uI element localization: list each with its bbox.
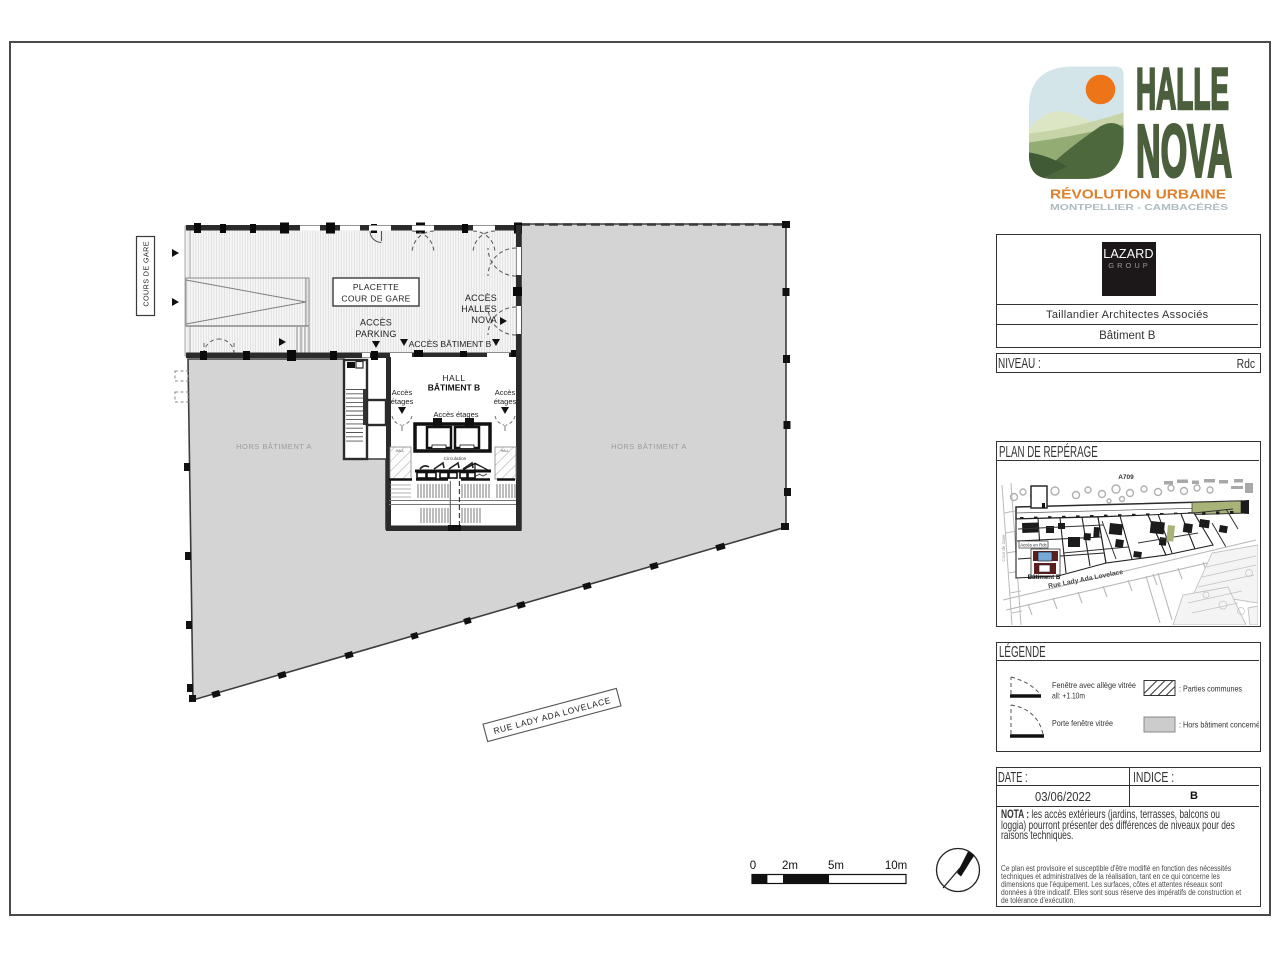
svg-text:all: +1.10m: all: +1.10m bbox=[1052, 691, 1085, 701]
svg-text:RUE LADY ADA LOVELACE: RUE LADY ADA LOVELACE bbox=[492, 695, 612, 736]
svg-text:NOVA: NOVA bbox=[1136, 110, 1232, 193]
svg-text:NOVA: NOVA bbox=[471, 315, 497, 325]
svg-text:Accès en Rdc: Accès en Rdc bbox=[1020, 542, 1047, 547]
svg-text:2m: 2m bbox=[782, 860, 798, 872]
svg-text:0: 0 bbox=[750, 860, 756, 872]
svg-text:ACCÈS: ACCÈS bbox=[465, 293, 497, 303]
svg-text:Porte fenêtre vitrée: Porte fenêtre vitrée bbox=[1052, 718, 1113, 728]
svg-text:A709: A709 bbox=[1118, 474, 1134, 481]
svg-text:Circulation: Circulation bbox=[444, 456, 467, 462]
svg-text:BÂTIMENT B: BÂTIMENT B bbox=[428, 382, 480, 393]
svg-text:PARKING: PARKING bbox=[355, 329, 396, 339]
svg-text:HORS BÂTIMENT A: HORS BÂTIMENT A bbox=[611, 442, 687, 451]
svg-text:étages: étages bbox=[494, 397, 517, 406]
svg-text:étages: étages bbox=[391, 397, 414, 406]
svg-text:MONTPELLIER - CAMBACÉRÈS: MONTPELLIER - CAMBACÉRÈS bbox=[1050, 203, 1229, 212]
svg-text:HALL: HALL bbox=[442, 373, 465, 383]
svg-text:PLACETTE: PLACETTE bbox=[353, 282, 399, 292]
svg-text:Accès: Accès bbox=[392, 388, 413, 397]
svg-text:10m: 10m bbox=[885, 860, 907, 872]
svg-text:ACCÈS BÂTIMENT B: ACCÈS BÂTIMENT B bbox=[409, 339, 492, 349]
svg-text:HALL: HALL bbox=[501, 449, 510, 453]
svg-text:: Hors bâtiment concerné: : Hors bâtiment concerné bbox=[1179, 720, 1259, 730]
svg-text:ACCÈS: ACCÈS bbox=[360, 318, 392, 328]
svg-text:: Parties communes: : Parties communes bbox=[1179, 684, 1242, 694]
svg-text:5m: 5m bbox=[828, 860, 844, 872]
svg-text:Accès étages: Accès étages bbox=[433, 410, 478, 419]
svg-text:RÉVOLUTION URBAINE: RÉVOLUTION URBAINE bbox=[1050, 187, 1226, 202]
svg-text:COUR DE GARE: COUR DE GARE bbox=[341, 294, 410, 304]
svg-text:Bâtiment B: Bâtiment B bbox=[1027, 574, 1060, 581]
svg-text:Accès: Accès bbox=[495, 388, 516, 397]
svg-text:HORS BÂTIMENT A: HORS BÂTIMENT A bbox=[236, 442, 312, 451]
svg-text:Fenêtre avec allège vitrée: Fenêtre avec allège vitrée bbox=[1052, 680, 1136, 690]
svg-text:COURS DE GARE: COURS DE GARE bbox=[141, 241, 150, 307]
svg-text:HALLES: HALLES bbox=[461, 304, 497, 314]
svg-text:Cour de Gare: Cour de Gare bbox=[1001, 533, 1006, 561]
svg-text:HALL: HALL bbox=[396, 449, 405, 453]
